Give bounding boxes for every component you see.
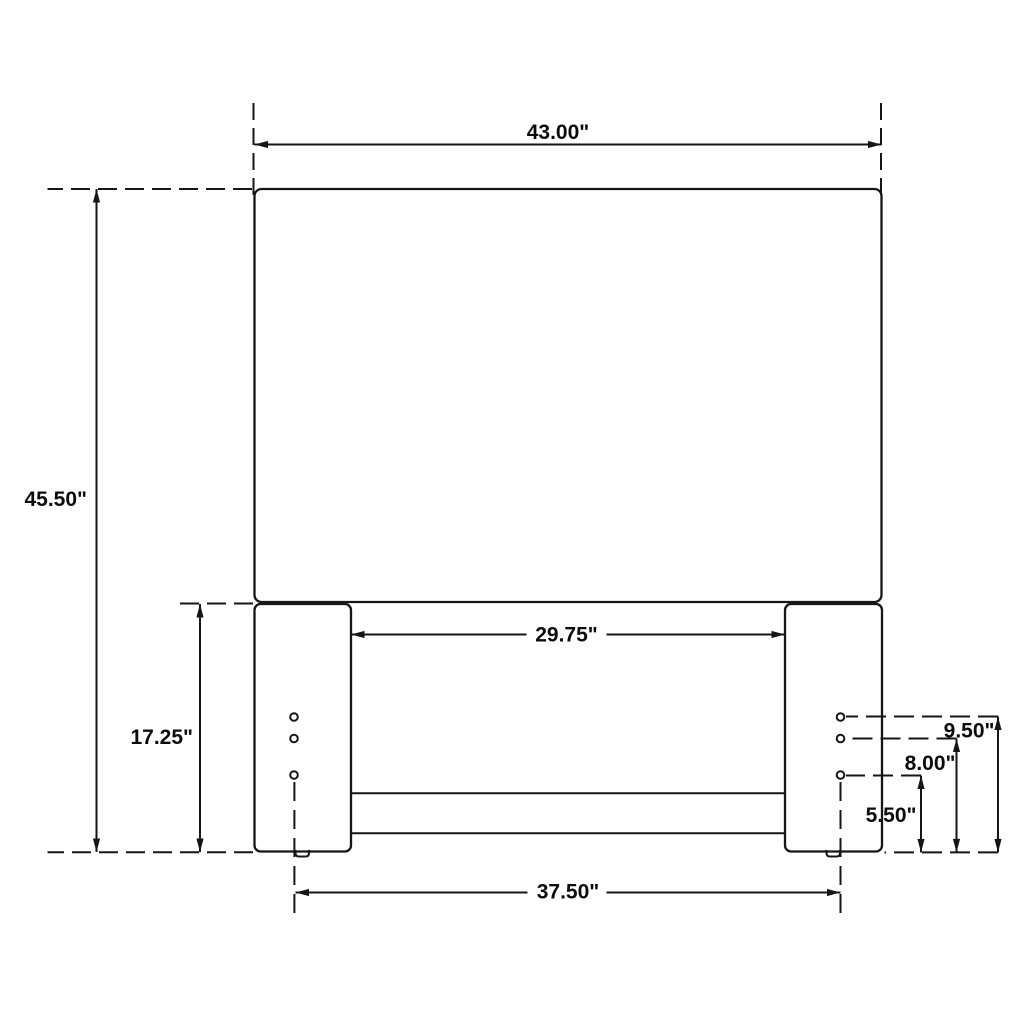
svg-text:17.25": 17.25" <box>130 726 193 749</box>
svg-text:8.00": 8.00" <box>905 752 956 775</box>
svg-text:37.50": 37.50" <box>537 881 600 904</box>
svg-text:45.50": 45.50" <box>24 488 87 511</box>
svg-text:43.00": 43.00" <box>527 121 590 144</box>
svg-text:9.50": 9.50" <box>944 720 995 743</box>
svg-text:29.75": 29.75" <box>535 624 598 647</box>
svg-text:5.50": 5.50" <box>866 804 917 827</box>
